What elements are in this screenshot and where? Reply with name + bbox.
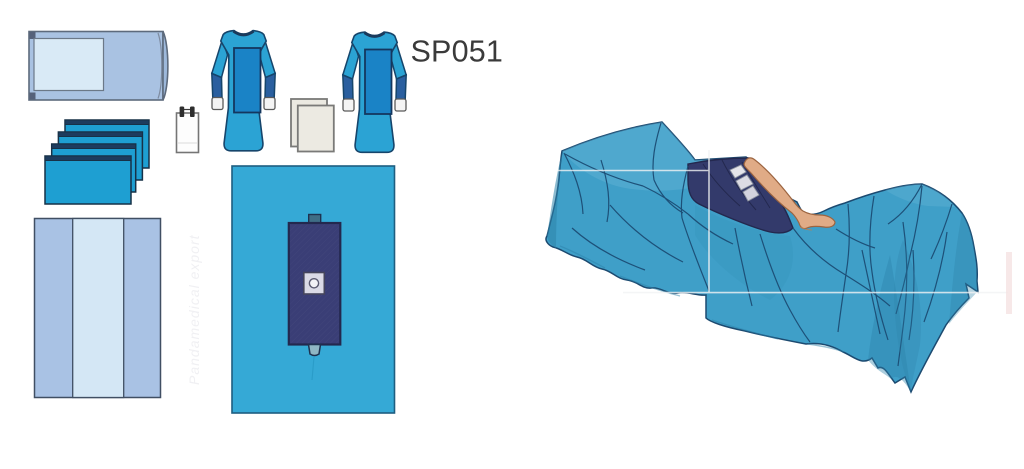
- svg-text:SP051: SP051: [411, 35, 504, 69]
- svg-text:Pandamedical export: Pandamedical export: [186, 234, 202, 385]
